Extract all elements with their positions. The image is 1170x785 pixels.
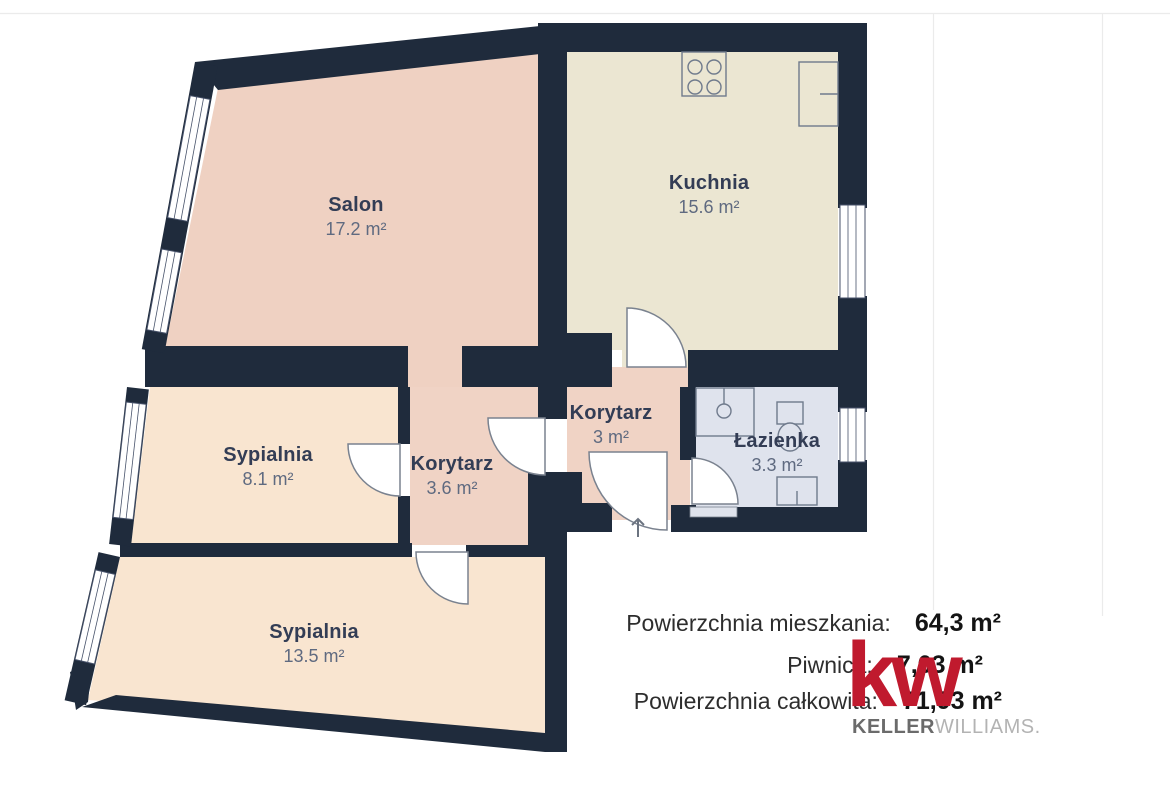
keller-williams-logo: kw KELLERWILLIAMS. bbox=[846, 640, 1046, 739]
threshold bbox=[690, 507, 737, 517]
room-label-korytarz-2: Korytarz 3 m² bbox=[570, 401, 653, 449]
room-label-salon: Salon 17.2 m² bbox=[325, 193, 386, 241]
room-name: Łazienka bbox=[734, 429, 820, 454]
room-area: 13.5 m² bbox=[269, 645, 359, 668]
kw-wordmark: KELLERWILLIAMS. bbox=[852, 716, 1046, 739]
room-area: 17.2 m² bbox=[325, 218, 386, 241]
summary-label: Powierzchnia całkowita: bbox=[634, 688, 878, 715]
room-label-sypialnia-1: Sypialnia 8.1 m² bbox=[223, 443, 313, 491]
floor-plan-page: Salon 17.2 m² Kuchnia 15.6 m² Sypialnia … bbox=[0, 0, 1170, 785]
washing-machine-icon bbox=[777, 477, 817, 505]
room-area: 3 m² bbox=[570, 426, 653, 449]
room-name: Sypialnia bbox=[223, 443, 313, 468]
room-name: Kuchnia bbox=[669, 171, 749, 196]
fridge-icon bbox=[799, 62, 838, 126]
window-icon bbox=[840, 408, 865, 462]
room-area: 8.1 m² bbox=[223, 468, 313, 491]
room-name: Korytarz bbox=[411, 452, 494, 477]
room-label-sypialnia-2: Sypialnia 13.5 m² bbox=[269, 620, 359, 668]
room-label-lazienka: Łazienka 3.3 m² bbox=[734, 429, 820, 477]
stove-icon bbox=[682, 52, 726, 96]
room-name: Salon bbox=[325, 193, 386, 218]
room-name: Korytarz bbox=[570, 401, 653, 426]
room-area: 3.6 m² bbox=[411, 477, 494, 500]
room-name: Sypialnia bbox=[269, 620, 359, 645]
room-area: 15.6 m² bbox=[669, 196, 749, 219]
room-label-korytarz-1: Korytarz 3.6 m² bbox=[411, 452, 494, 500]
room-area: 3.3 m² bbox=[734, 454, 820, 477]
kw-monogram-icon: kw bbox=[846, 640, 1046, 712]
room-label-kuchnia: Kuchnia 15.6 m² bbox=[669, 171, 749, 219]
window-icon bbox=[840, 205, 865, 298]
